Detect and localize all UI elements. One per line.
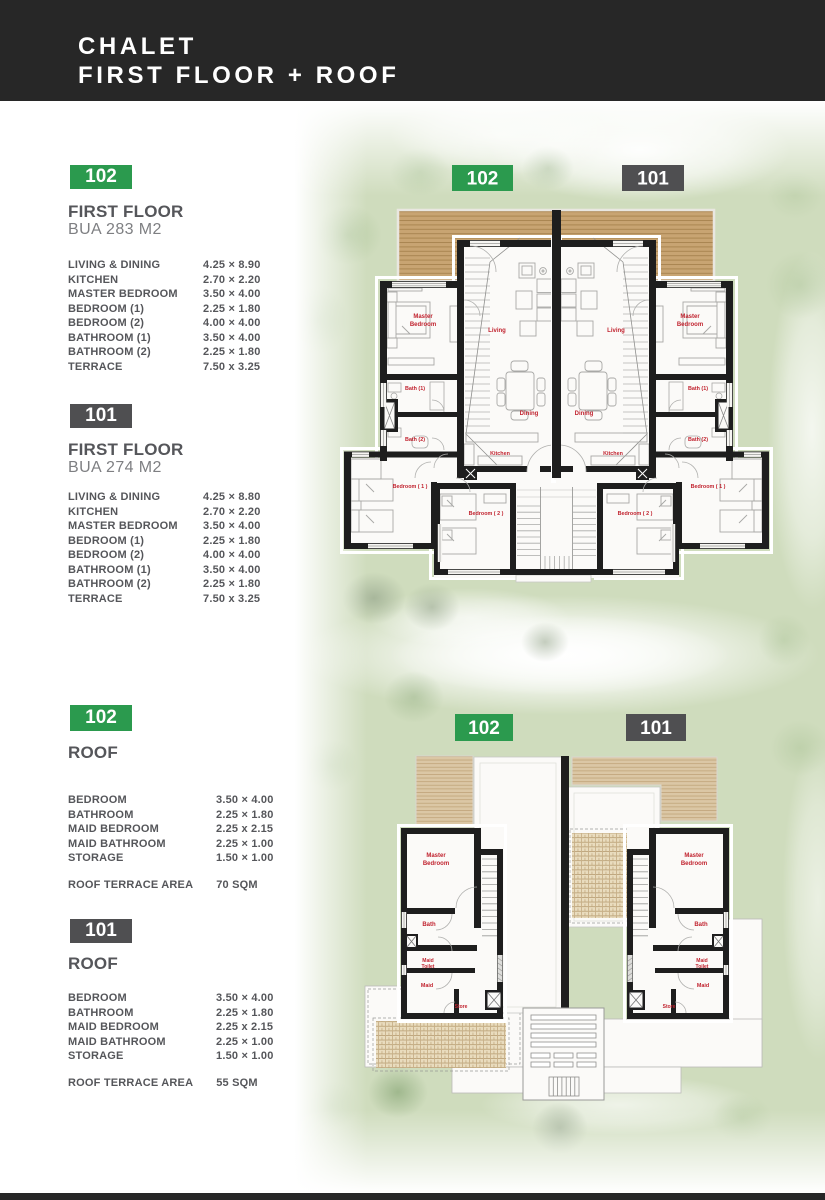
svg-text:Dining: Dining [520, 411, 539, 417]
svg-text:Bath (2): Bath (2) [405, 437, 425, 443]
svg-text:Bedroom ( 2 ): Bedroom ( 2 ) [469, 511, 504, 517]
svg-text:Toilet: Toilet [696, 964, 709, 970]
svg-text:101: 101 [637, 169, 669, 190]
svg-text:Dining: Dining [575, 411, 594, 417]
svg-text:Toilet: Toilet [422, 964, 435, 970]
svg-text:Maid: Maid [421, 983, 433, 989]
svg-text:Bedroom ( 1 ): Bedroom ( 1 ) [691, 484, 726, 490]
svg-text:Master: Master [426, 853, 446, 859]
svg-text:Bath (1): Bath (1) [688, 386, 708, 392]
svg-text:Bedroom: Bedroom [677, 322, 703, 328]
svg-text:Kitchen: Kitchen [603, 451, 623, 457]
svg-text:Living: Living [488, 328, 506, 334]
svg-text:Master: Master [680, 314, 700, 320]
svg-text:Master: Master [684, 853, 704, 859]
svg-text:Maid: Maid [697, 983, 709, 989]
svg-text:Bath (2): Bath (2) [688, 437, 708, 443]
svg-text:Bedroom ( 1 ): Bedroom ( 1 ) [393, 484, 428, 490]
svg-text:102: 102 [467, 169, 499, 190]
svg-text:Bedroom: Bedroom [423, 861, 449, 867]
svg-text:Living: Living [607, 328, 625, 334]
svg-text:101: 101 [640, 718, 672, 739]
svg-text:Bedroom: Bedroom [681, 861, 707, 867]
svg-text:Master: Master [413, 314, 433, 320]
svg-text:Bath (1): Bath (1) [405, 386, 425, 392]
svg-text:Store: Store [663, 1004, 676, 1010]
svg-text:Store: Store [455, 1004, 468, 1010]
svg-text:Bath: Bath [694, 922, 708, 928]
svg-text:Kitchen: Kitchen [490, 451, 510, 457]
svg-text:Bedroom: Bedroom [410, 322, 436, 328]
svg-text:Bath: Bath [422, 922, 436, 928]
svg-text:Bedroom ( 2 ): Bedroom ( 2 ) [618, 511, 653, 517]
svg-text:102: 102 [468, 718, 500, 739]
